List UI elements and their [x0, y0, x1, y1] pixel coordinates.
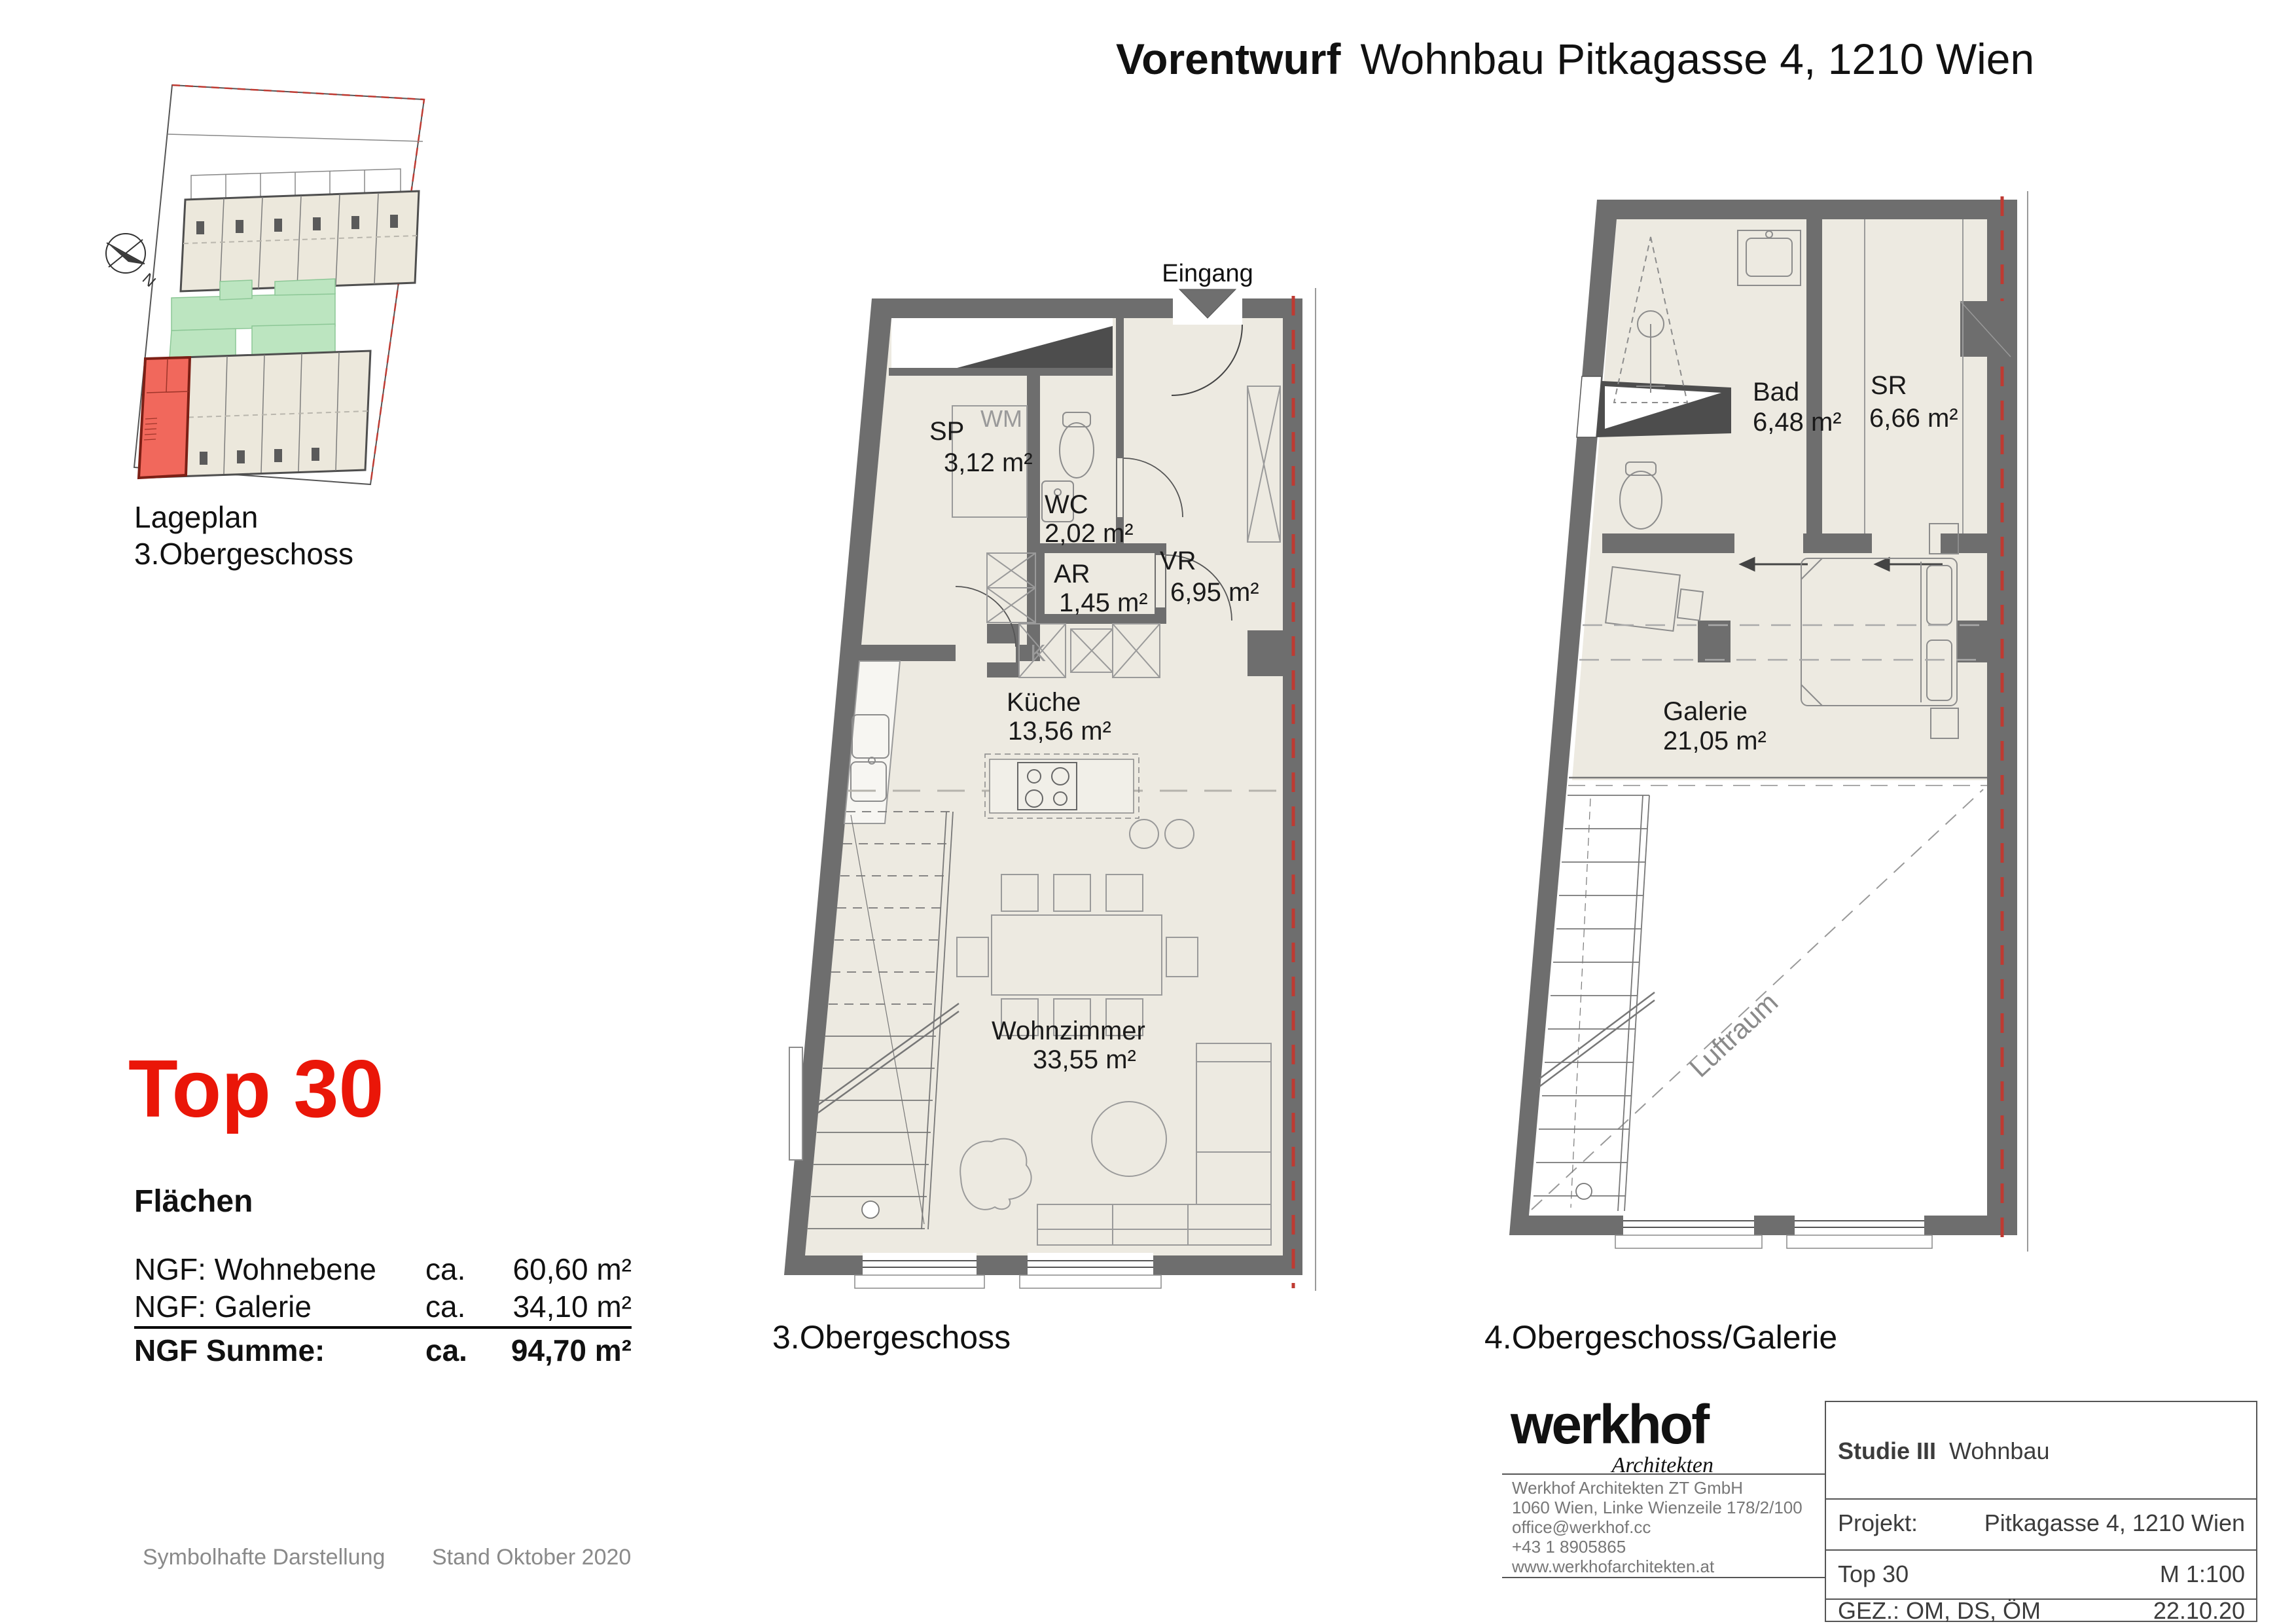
siteplan-upper-building [181, 191, 419, 291]
room-label: AR [1054, 560, 1090, 588]
study-subtitle: Wohnbau [1949, 1437, 2049, 1464]
washer-label: WM [980, 405, 1022, 432]
area-row-value: 60,60 m² [491, 1252, 632, 1287]
sheet-title-bold: Vorentwurf [1116, 35, 1340, 83]
titleblock-hline [1825, 1498, 2257, 1500]
area-row-label: NGF: Galerie [134, 1289, 425, 1324]
radiator-icon [789, 1047, 802, 1160]
area-row-label: NGF: Wohnebene [134, 1252, 425, 1287]
room-area: 13,56 m² [1008, 717, 1111, 746]
kitchen-k-label: K [1030, 640, 1046, 666]
area-row-ca: ca. [425, 1289, 491, 1324]
titleblock-hline [1502, 1473, 1825, 1475]
titleblock-study-row: Studie III Wohnbau [1838, 1437, 2245, 1465]
area-row-ca: ca. [425, 1252, 491, 1287]
area-sum-ca: ca. [425, 1333, 491, 1368]
footer-note-date: Stand Oktober 2020 [432, 1545, 631, 1570]
firm-address-line: +43 1 8905865 [1512, 1537, 1803, 1557]
room-area: 21,05 m² [1663, 727, 1767, 755]
firm-address-line: www.werkhofarchitekten.at [1512, 1557, 1803, 1576]
room-label: WC [1045, 490, 1088, 519]
titleblock-hline [1825, 1549, 2257, 1551]
project-label: Projekt: [1838, 1509, 1918, 1537]
plan1-entrance-label: Eingang [1162, 260, 1253, 287]
gez-value: GEZ.: OM, DS, ÖM [1838, 1597, 2041, 1624]
floorplan-3og: Eingang [753, 249, 1342, 1303]
room-label: Küche [1007, 688, 1081, 717]
siteplan-highlight-unit [139, 357, 190, 478]
north-label: N [139, 270, 159, 291]
footer-note-symbolic: Symbolhafte Darstellung [143, 1545, 385, 1570]
room-label: VR [1160, 547, 1196, 575]
firm-logo: werkhof [1511, 1397, 1713, 1452]
titleblock-hline [1502, 1577, 1825, 1578]
area-sum-value: 94,70 m² [491, 1333, 632, 1368]
room-area: 6,48 m² [1753, 408, 1842, 437]
titleblock-hline [1825, 1401, 2257, 1402]
date-value: 22.10.20 [2153, 1597, 2245, 1624]
plan1-caption: 3.Obergeschoss [772, 1318, 1011, 1356]
firm-address-line: Werkhof Architekten ZT GmbH [1512, 1478, 1803, 1498]
firm-address-line: 1060 Wien, Linke Wienzeile 178/2/100 [1512, 1498, 1803, 1517]
titleblock-project-row: Projekt: Pitkagasse 4, 1210 Wien [1838, 1509, 2245, 1537]
titleblock-top-row: Top 30 M 1:100 [1838, 1561, 2245, 1588]
plan1-wc-door-gap [1117, 458, 1122, 517]
room-label: Wohnzimmer [992, 1017, 1145, 1045]
siteplan-drawing: N [98, 62, 465, 520]
firm-address: Werkhof Architekten ZT GmbH 1060 Wien, L… [1512, 1478, 1803, 1576]
area-sum-label: NGF Summe: [134, 1333, 425, 1368]
titleblock-vline [2256, 1401, 2257, 1622]
floorplan-4og: Bad 6,48 m² SR 6,66 m² Galerie 21,05 m² … [1492, 183, 2055, 1263]
room-area: 6,66 m² [1869, 404, 1958, 433]
titleblock-vline [1825, 1401, 1826, 1622]
room-area: 33,55 m² [1033, 1045, 1136, 1074]
area-row: NGF: Wohnebene ca. 60,60 m² [134, 1252, 632, 1289]
plan2-caption: 4.Obergeschoss/Galerie [1484, 1318, 1837, 1356]
room-area: 6,95 m² [1170, 578, 1259, 607]
siteplan-caption-line1: Lageplan [134, 499, 353, 535]
plan1-sp-door-gap [956, 643, 1016, 662]
room-label: Galerie [1663, 697, 1748, 726]
drawing-sheet: VorentwurfWohnbau Pitkagasse 4, 1210 Wie… [0, 0, 2296, 1624]
sheet-title: VorentwurfWohnbau Pitkagasse 4, 1210 Wie… [1116, 34, 2034, 84]
site-inner-line [168, 134, 423, 141]
room-label: Bad [1753, 378, 1799, 406]
areas-table: NGF: Wohnebene ca. 60,60 m² NGF: Galerie… [134, 1252, 632, 1370]
study-title: Studie III [1838, 1437, 1936, 1464]
titleblock-gez-row: GEZ.: OM, DS, ÖM 22.10.20 [1838, 1597, 2245, 1624]
project-value: Pitkagasse 4, 1210 Wien [1984, 1509, 2245, 1537]
area-row-value: 34,10 m² [491, 1289, 632, 1324]
room-label: SR [1871, 371, 1907, 400]
top-label: Top 30 [1838, 1561, 1909, 1588]
unit-title: Top 30 [128, 1045, 384, 1134]
room-area: 1,45 m² [1059, 588, 1148, 617]
area-row: NGF: Galerie ca. 34,10 m² [134, 1289, 632, 1326]
areas-heading: Flächen [134, 1183, 253, 1219]
room-area: 2,02 m² [1045, 519, 1134, 548]
siteplan-caption: Lageplan 3.Obergeschoss [134, 499, 353, 572]
firm-address-line: office@werkhof.cc [1512, 1517, 1803, 1537]
scale-value: M 1:100 [2160, 1561, 2245, 1588]
area-sum-row: NGF Summe: ca. 94,70 m² [134, 1326, 632, 1370]
sheet-title-rest: Wohnbau Pitkagasse 4, 1210 Wien [1360, 35, 2034, 83]
plan1-wall-sp-top [889, 368, 1113, 376]
room-area: 3,12 m² [944, 448, 1033, 477]
plan2-gallery-floor [1572, 219, 1987, 780]
siteplan-caption-line2: 3.Obergeschoss [134, 535, 353, 572]
room-label: SP [929, 417, 964, 446]
north-compass-icon: N [106, 234, 159, 291]
